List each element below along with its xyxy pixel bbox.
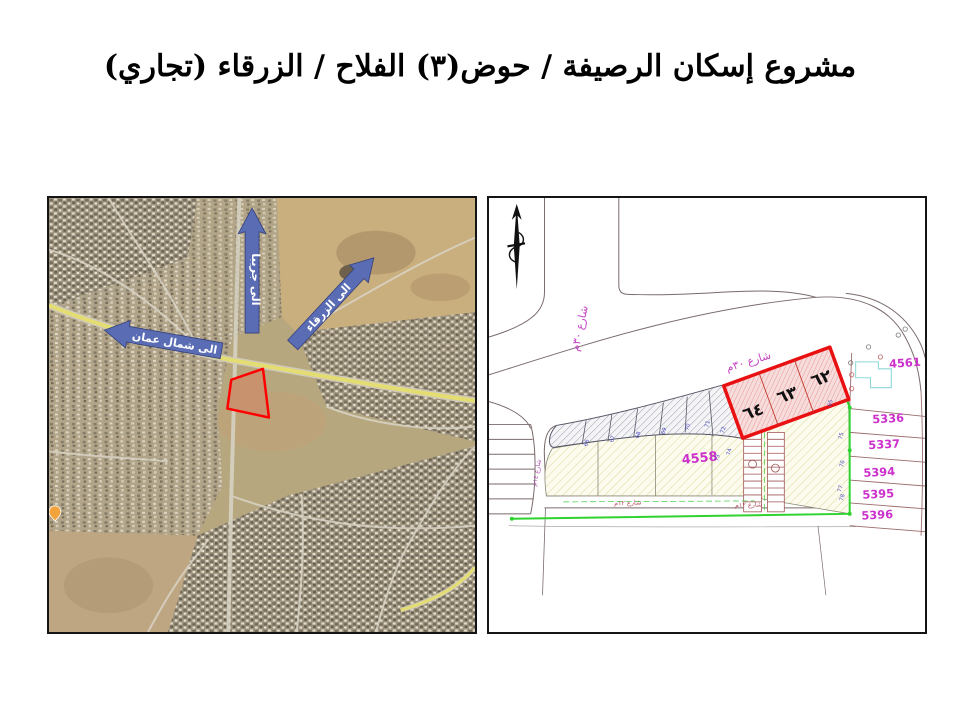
page-title: مشروع إسكان الرصيفة / حوض(٣) الفلاح / ال… <box>40 50 920 85</box>
parcel-5396-label: 5396 <box>861 507 893 523</box>
parcel-4561-label: 4561 <box>889 355 922 371</box>
parcel-5395-label: 5395 <box>862 486 894 502</box>
parcel-5394-label: 5394 <box>863 464 895 480</box>
satellite-location-map: الى جريبا الى الزرقاء الى شمال عمان <box>47 196 477 634</box>
parcel-5336-label: 5336 <box>872 411 904 427</box>
cadastral-site-plan: ٦٤ ٦٣ ٦٢ 4561 5336 5337 5394 5395 5396 4… <box>487 196 927 634</box>
arrow-north-label: الى جريبا <box>249 253 263 305</box>
parcel-5337-label: 5337 <box>868 436 900 452</box>
street-12-label-b: شارع ١٢م <box>735 500 763 509</box>
site-plan-canvas: ٦٤ ٦٣ ٦٢ 4561 5336 5337 5394 5395 5396 4… <box>489 198 925 632</box>
street-12-label-a: شارع ١٢م <box>614 498 642 507</box>
satellite-map-canvas: الى جريبا الى الزرقاء الى شمال عمان <box>49 198 475 632</box>
